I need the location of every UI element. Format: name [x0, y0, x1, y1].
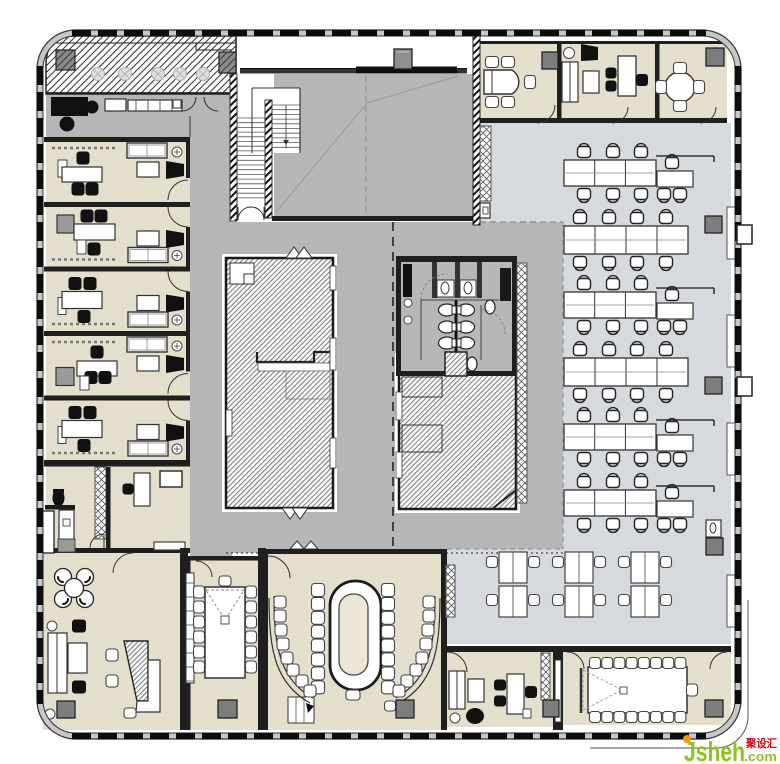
- svg-text:.com: .com: [744, 749, 777, 764]
- svg-text:聚设汇: 聚设汇: [745, 736, 777, 750]
- svg-text:Jsheh: Jsheh: [684, 736, 745, 764]
